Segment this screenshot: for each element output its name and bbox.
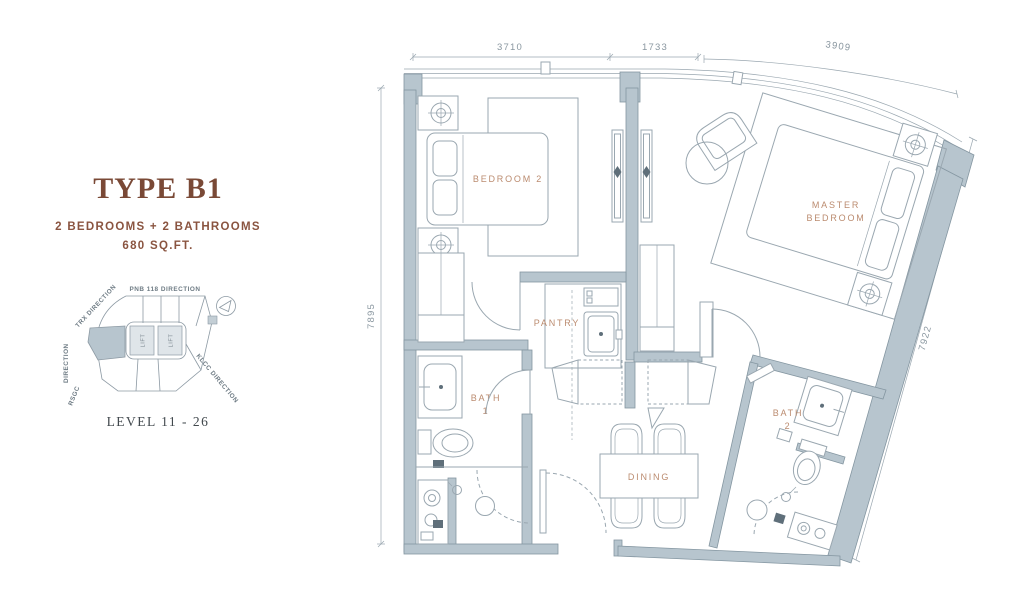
shower-head-icon xyxy=(782,493,791,502)
dining-chair xyxy=(611,424,642,454)
entrance-door-arc xyxy=(546,473,606,533)
floor-plan-page: TYPE B1 2 BEDROOMS + 2 BATHROOMS 680 SQ.… xyxy=(0,0,1024,605)
dim-top-right: 3909 xyxy=(825,39,852,54)
bath2-fixtures xyxy=(770,507,837,550)
bath1-toilet-tank xyxy=(418,430,431,454)
floor-trap xyxy=(433,520,443,528)
master-wardrobe-base xyxy=(640,327,674,351)
master-door-arc xyxy=(712,309,760,357)
bath2-shower-drain xyxy=(747,500,767,520)
pillow xyxy=(433,180,457,215)
bath1: BATH 1 xyxy=(416,356,530,544)
master-door-pier xyxy=(700,302,713,357)
master-bedroom-label-line1: MASTER xyxy=(812,200,860,210)
faucet xyxy=(616,330,622,339)
bath2-label-line1: BATH xyxy=(773,408,804,418)
mullion xyxy=(732,71,743,84)
entrance xyxy=(540,470,606,533)
dim-top-left: 3710 xyxy=(497,42,523,53)
dining-chair xyxy=(611,498,642,528)
master-bedroom-label-line2: BEDROOM xyxy=(806,213,865,223)
dining-chair xyxy=(654,498,685,528)
bath1-label-line1: BATH xyxy=(471,393,502,403)
dim-top-middle: 1733 xyxy=(642,42,668,53)
floor-plan-drawing: 3710 1733 3909 7895 7922 xyxy=(0,0,1024,605)
master-armchair xyxy=(692,108,757,170)
bedroom2-door-arc xyxy=(472,282,520,330)
bath1-shower-drain xyxy=(476,497,495,516)
pantry-label: PANTRY xyxy=(534,318,580,328)
entrance-door-leaf xyxy=(540,470,546,533)
bedroom2-label: BEDROOM 2 xyxy=(473,174,543,184)
mullion xyxy=(541,62,550,74)
bath1-toilet xyxy=(433,429,473,457)
dining-chair xyxy=(654,424,685,454)
bath2-label-line2: 2 xyxy=(785,421,792,431)
pillow xyxy=(433,141,457,176)
bath1-door-arc xyxy=(486,370,530,414)
dining-label: DINING xyxy=(628,472,670,482)
bedroom2: BEDROOM 2 xyxy=(418,96,578,342)
bedroom2-wardrobe-base xyxy=(418,315,464,342)
dining: DINING xyxy=(600,424,698,528)
dim-left: 7895 xyxy=(366,303,377,329)
